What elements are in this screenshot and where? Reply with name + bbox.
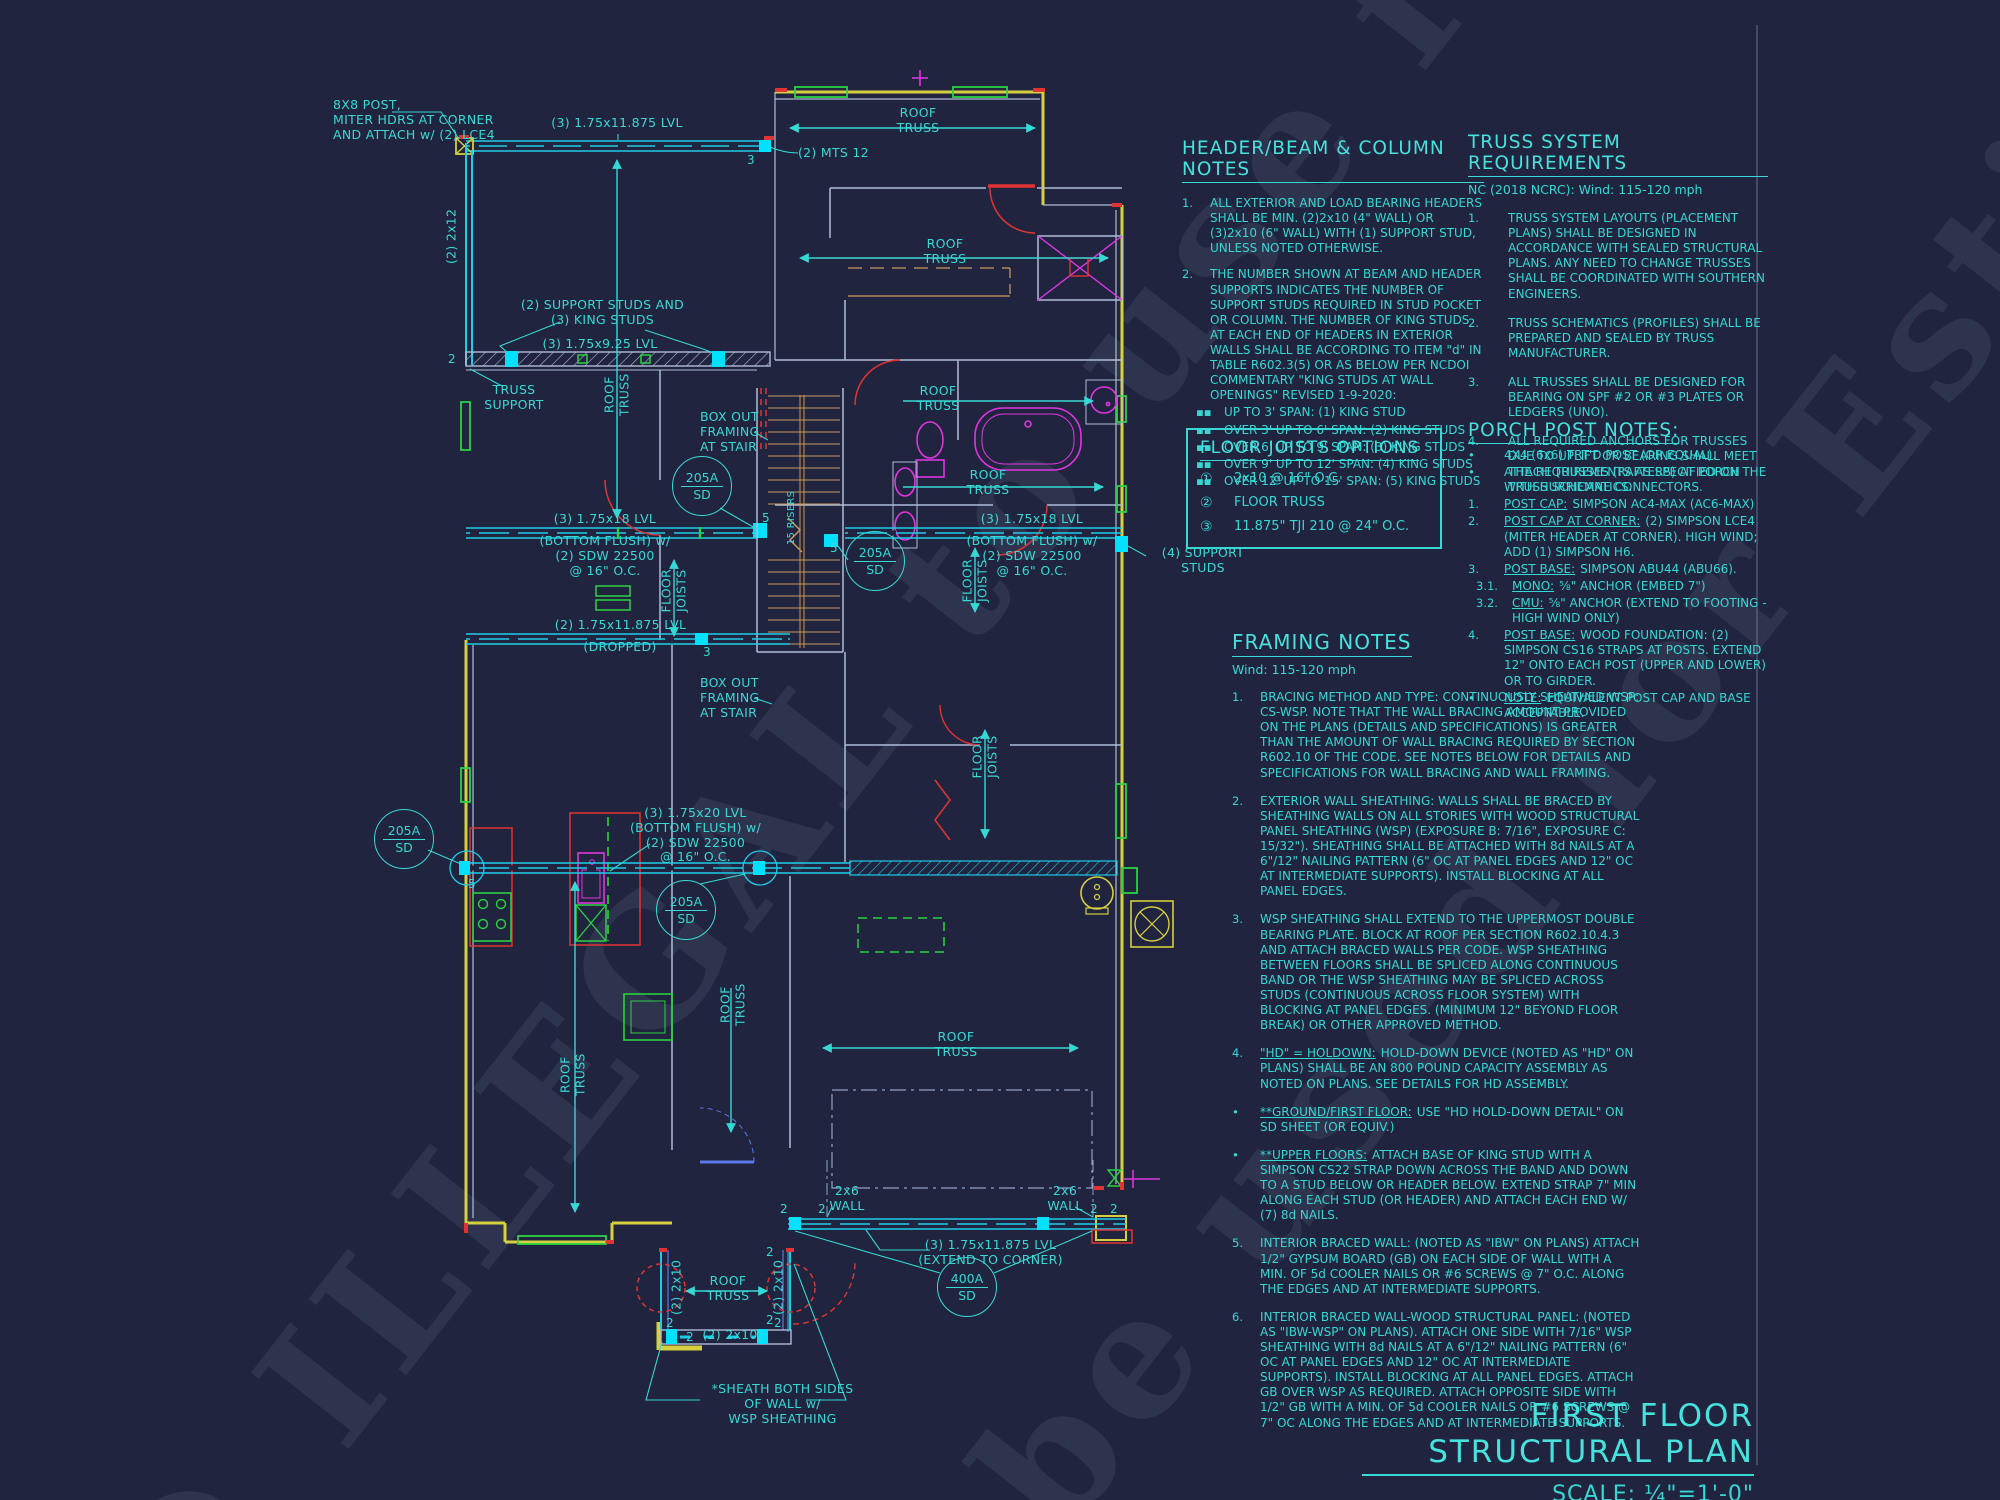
plan-label: ROOF TRUSS (952, 468, 1024, 498)
plan-label: BOX OUT FRAMING AT STAIR (700, 410, 785, 454)
plan-label: ROOF TRUSS (916, 1030, 996, 1060)
note-item: 3. ALL TRUSSES SHALL BE DESIGNED FOR BEA… (1468, 375, 1768, 420)
plan-label: ROOF TRUSS (902, 384, 974, 414)
note-item: 2. EXTERIOR WALL SHEATHING: WALLS SHALL … (1232, 794, 1640, 900)
note-item: • ATTACH TRUSSES (RAFTERS) AT PORCH WITH… (1468, 465, 1774, 495)
plan-label: (BOTTOM FLUSH) w/ (2) SDW 22500 @ 16" O.… (538, 534, 672, 578)
sd-callout-sheet: SD (677, 911, 695, 927)
section-title: PORCH POST NOTES: (1468, 420, 1679, 444)
stud-count-marker: 2 (448, 352, 456, 366)
joist-option: ② FLOOR TRUSS (1200, 495, 1428, 511)
stud-count-marker: 5 (830, 541, 838, 555)
stud-count-marker: 2 (686, 1330, 694, 1344)
framing-notes: FRAMING NOTES Wind: 115-120 mph 1. BRACI… (1232, 630, 1640, 1431)
stud-count-marker: 2 (766, 1313, 774, 1327)
sd-callout-number: 205A (681, 470, 723, 487)
plan-label: (DROPPED) (560, 640, 680, 655)
note-item: 1. ALL EXTERIOR AND LOAD BEARING HEADERS… (1182, 196, 1484, 256)
plan-label: (3) 1.75x20 LVL (BOTTOM FLUSH) w/ (2) SD… (628, 806, 763, 865)
plan-label: ROOF TRUSS (878, 106, 958, 136)
note-item: 2. TRUSS SCHEMATICS (PROFILES) SHALL BE … (1468, 316, 1768, 361)
note-item: • **UPPER FLOORS:ATTACH BASE OF KING STU… (1232, 1148, 1640, 1224)
plan-label: ROOF TRUSS (602, 355, 632, 435)
note-item: 2. POST CAP AT CORNER:(2) SIMPSON LCE4 (… (1468, 514, 1774, 559)
section-subtitle: Wind: 115-120 mph (1232, 662, 1640, 677)
stud-count-marker: 2 (756, 1330, 764, 1344)
plan-label: (3) 1.75x18 LVL (545, 512, 665, 527)
sd-callout-sheet: SD (958, 1288, 976, 1304)
sd-callout-sheet: SD (866, 562, 884, 578)
sd-callout-circle: 400A SD (937, 1257, 997, 1317)
sd-callout-sheet: SD (693, 487, 711, 503)
plan-label: (3) 1.75x11.875 LVL (EXTEND TO CORNER) (898, 1238, 1083, 1268)
section-title: FLOOR JOISTS OPTIONS (1200, 438, 1419, 461)
stud-count-marker: 2 (1110, 1202, 1118, 1216)
stud-count-marker: 2 (1090, 1202, 1098, 1216)
note-item: 1. TRUSS SYSTEM LAYOUTS (PLACEMENT PLANS… (1468, 211, 1768, 302)
sd-callout-number: 205A (665, 894, 707, 911)
note-item: • 4X4 (6x6) TRT'D POST (OR EQUAL). (1468, 448, 1774, 463)
plan-label: ROOF TRUSS (905, 237, 985, 267)
plan-label: (3) 1.75x11.875 LVL (537, 116, 697, 131)
note-item: 3.2. CMU:⅝" ANCHOR (EXTEND TO FOOTING - … (1468, 596, 1774, 626)
note-item: 3. POST BASE:SIMPSON ABU44 (ABU66). (1468, 562, 1774, 577)
note-item: 4. "HD" = HOLDOWN:HOLD-DOWN DEVICE (NOTE… (1232, 1046, 1640, 1091)
drawing-sheet: © ILLEGAL to use for Construction May be… (0, 0, 2000, 1500)
sd-callout-sheet: SD (395, 840, 413, 856)
plan-label: ROOF TRUSS (558, 1035, 588, 1115)
stud-count-marker: 5 (762, 511, 770, 525)
section-title: FRAMING NOTES (1232, 630, 1412, 657)
note-item: 1. BRACING METHOD AND TYPE: CONTINUOUSLY… (1232, 690, 1640, 781)
note-item: 3. WSP SHEATHING SHALL EXTEND TO THE UPP… (1232, 912, 1640, 1033)
plan-label: FLOOR JOISTS (960, 541, 990, 621)
sheet-scale: SCALE: ¼"=1'-0" (1362, 1482, 1754, 1500)
sd-callout-number: 205A (854, 545, 896, 562)
plan-label: ROOF TRUSS (688, 1274, 768, 1304)
stud-count-marker: 2 (766, 1245, 774, 1259)
stud-count-marker: 2 (774, 1316, 782, 1330)
plan-label: (4) SUPPORT STUDS (1148, 546, 1258, 576)
sd-callout-circle: 205A SD (374, 809, 434, 869)
plan-label: *SHEATH BOTH SIDES OF WALL w/ WSP SHEATH… (700, 1382, 865, 1426)
sd-callout-number: 205A (383, 823, 425, 840)
plan-label: (2) 1.75x11.875 LVL (538, 618, 703, 633)
stud-count-marker: 5 (468, 877, 476, 891)
plan-label: BOX OUT FRAMING AT STAIR (700, 676, 785, 720)
note-item: 3.1. MONO:⅝" ANCHOR (EMBED 7") (1468, 579, 1774, 594)
note-item: 5. INTERIOR BRACED WALL: (NOTED AS "IBW"… (1232, 1236, 1640, 1296)
section-subtitle: NC (2018 NCRC): Wind: 115-120 mph (1468, 182, 1768, 197)
plan-label: 15 RISERS (786, 478, 798, 558)
plan-label: ROOF TRUSS (718, 965, 748, 1045)
floor-joists-options: FLOOR JOISTS OPTIONS ① 2x10 @ 16" O.C. ②… (1186, 428, 1442, 549)
section-title: HEADER/BEAM & COLUMN NOTES (1182, 138, 1484, 183)
plan-label: TRUSS SUPPORT (478, 383, 550, 413)
stud-count-marker: 2 (666, 1316, 674, 1330)
plan-label: FLOOR JOISTS (970, 717, 1000, 797)
plan-label: (2) SUPPORT STUDS AND (3) KING STUDS (505, 298, 700, 328)
plan-label: (2) MTS 12 (798, 146, 898, 161)
section-title: TRUSS SYSTEM REQUIREMENTS (1468, 132, 1768, 177)
stud-count-marker: 3 (703, 645, 711, 659)
joist-option: ③ 11.875" TJI 210 @ 24" O.C. (1200, 519, 1428, 535)
plan-label: (3) 1.75x18 LVL (972, 512, 1092, 527)
sd-callout-circle: 205A SD (845, 531, 905, 591)
sd-callout-number: 400A (946, 1271, 988, 1288)
joist-option: ① 2x10 @ 16" O.C. (1200, 471, 1428, 487)
stud-count-marker: 3 (747, 153, 755, 167)
plan-label: 8X8 POST, MITER HDRS AT CORNER AND ATTAC… (333, 98, 518, 142)
note-item: ▪▪ UP TO 3' SPAN: (1) KING STUD (1182, 405, 1484, 420)
sd-callout-circle: 205A SD (672, 456, 732, 516)
plan-label: (3) 1.75x9.25 LVL (520, 337, 680, 352)
plan-label: (2) 2x12 (445, 191, 460, 281)
stud-count-marker: 2 (780, 1202, 788, 1216)
sd-callout-circle: 205A SD (656, 880, 716, 940)
note-item: 1. POST CAP:SIMPSON AC4-MAX (AC6-MAX) (1468, 497, 1774, 512)
note-item: 2. THE NUMBER SHOWN AT BEAM AND HEADER S… (1182, 267, 1484, 403)
stud-count-marker: 2 (818, 1202, 826, 1216)
title-block: FIRST FLOOR STRUCTURAL PLAN SCALE: ¼"=1'… (1362, 1398, 1754, 1500)
sheet-title: FIRST FLOOR STRUCTURAL PLAN (1362, 1398, 1754, 1476)
note-item: • **GROUND/FIRST FLOOR:USE "HD HOLD-DOWN… (1232, 1105, 1640, 1135)
